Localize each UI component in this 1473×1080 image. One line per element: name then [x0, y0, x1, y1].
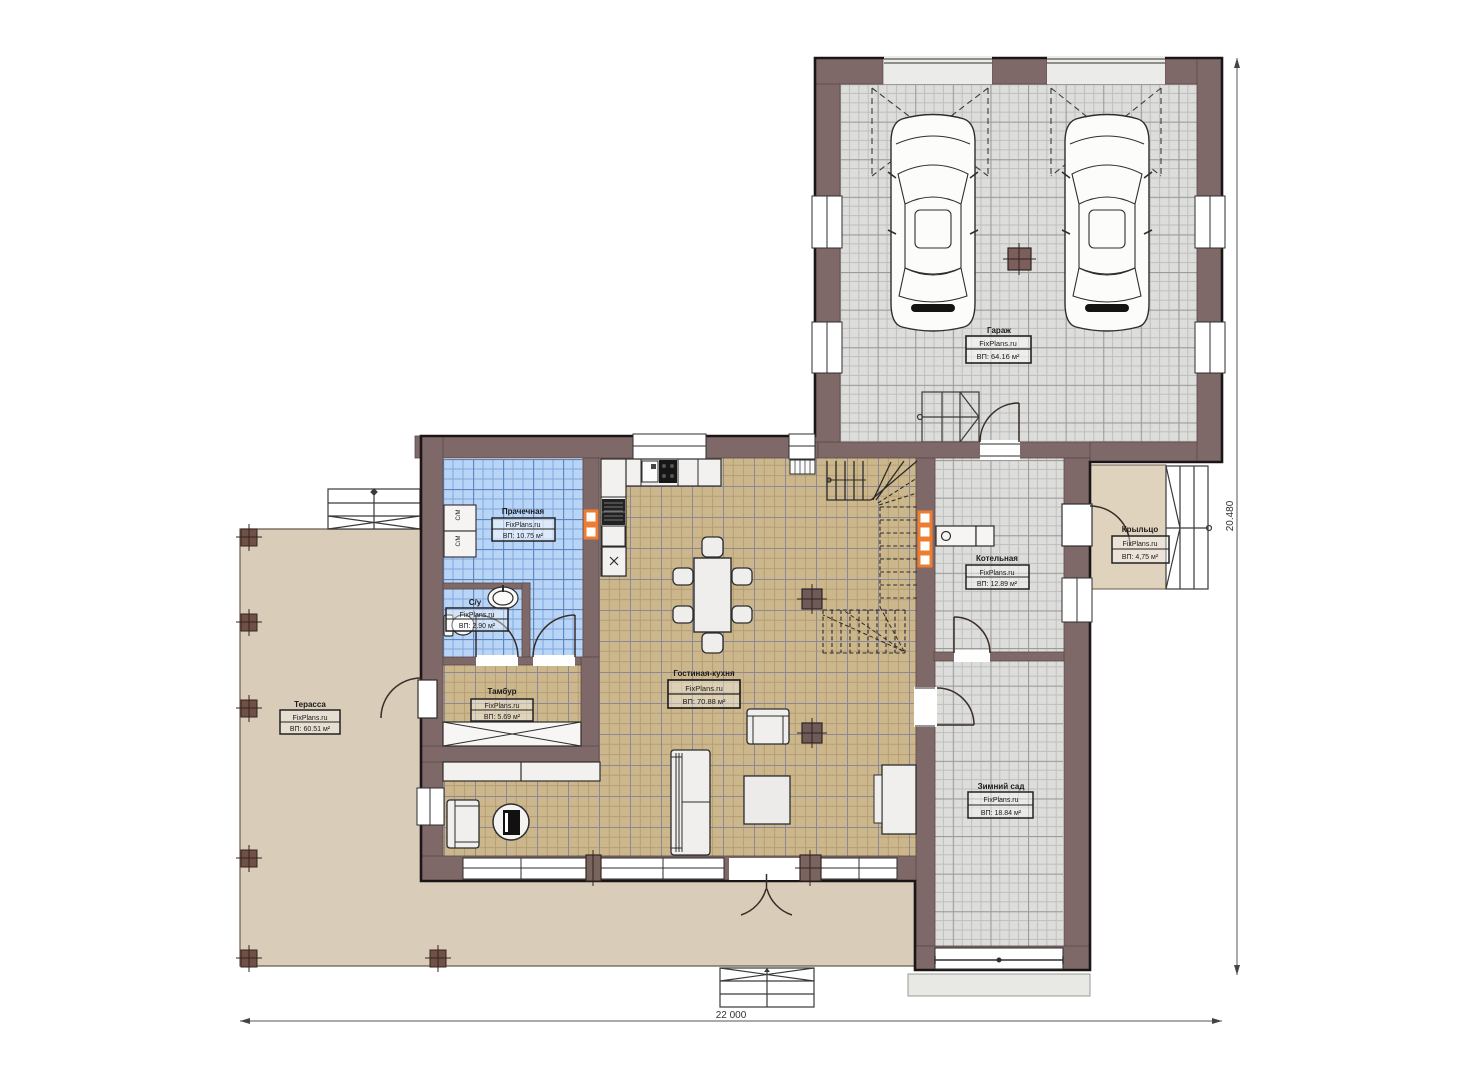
- svg-text:С/у: С/у: [469, 598, 482, 607]
- svg-text:FixPlans.ru: FixPlans.ru: [979, 339, 1017, 348]
- svg-text:FixPlans.ru: FixPlans.ru: [1122, 541, 1157, 548]
- svg-text:FixPlans.ru: FixPlans.ru: [484, 703, 519, 710]
- svg-text:FixPlans.ru: FixPlans.ru: [292, 715, 327, 722]
- svg-text:FixPlans.ru: FixPlans.ru: [685, 684, 723, 693]
- svg-text:FixPlans.ru: FixPlans.ru: [459, 612, 494, 619]
- svg-text:20.480: 20.480: [1225, 500, 1236, 531]
- svg-text:Зимний сад: Зимний сад: [978, 782, 1025, 791]
- svg-text:С/М: С/М: [456, 536, 462, 547]
- svg-text:FixPlans.ru: FixPlans.ru: [983, 797, 1018, 804]
- svg-text:ВП: 4,75 м²: ВП: 4,75 м²: [1122, 554, 1159, 561]
- svg-text:Терасса: Терасса: [294, 700, 326, 709]
- svg-text:ВП: 18.84 м²: ВП: 18.84 м²: [981, 810, 1022, 817]
- svg-text:ВП: 2.90 м²: ВП: 2.90 м²: [459, 623, 496, 630]
- svg-text:ВП: 64.16 м²: ВП: 64.16 м²: [976, 352, 1020, 361]
- svg-text:ВП: 10.75 м²: ВП: 10.75 м²: [503, 533, 544, 540]
- svg-text:Крыльцо: Крыльцо: [1122, 525, 1159, 534]
- svg-text:Тамбур: Тамбур: [487, 687, 516, 696]
- svg-text:С/М: С/М: [456, 510, 462, 521]
- svg-text:Гостиная-кухня: Гостиная-кухня: [673, 669, 735, 678]
- svg-text:ВП: 70.88 м²: ВП: 70.88 м²: [682, 697, 726, 706]
- svg-text:FixPlans.ru: FixPlans.ru: [505, 522, 540, 529]
- svg-text:ВП: 12.89 м²: ВП: 12.89 м²: [977, 581, 1018, 588]
- svg-text:ВП: 5.69 м²: ВП: 5.69 м²: [484, 714, 521, 721]
- svg-text:FixPlans.ru: FixPlans.ru: [979, 570, 1014, 577]
- svg-text:Гараж: Гараж: [987, 326, 1011, 335]
- svg-text:Прачечная: Прачечная: [502, 507, 545, 516]
- svg-text:22 000: 22 000: [716, 1010, 747, 1021]
- svg-text:ВП: 60.51 м²: ВП: 60.51 м²: [290, 726, 331, 733]
- svg-text:Котельная: Котельная: [976, 554, 1018, 563]
